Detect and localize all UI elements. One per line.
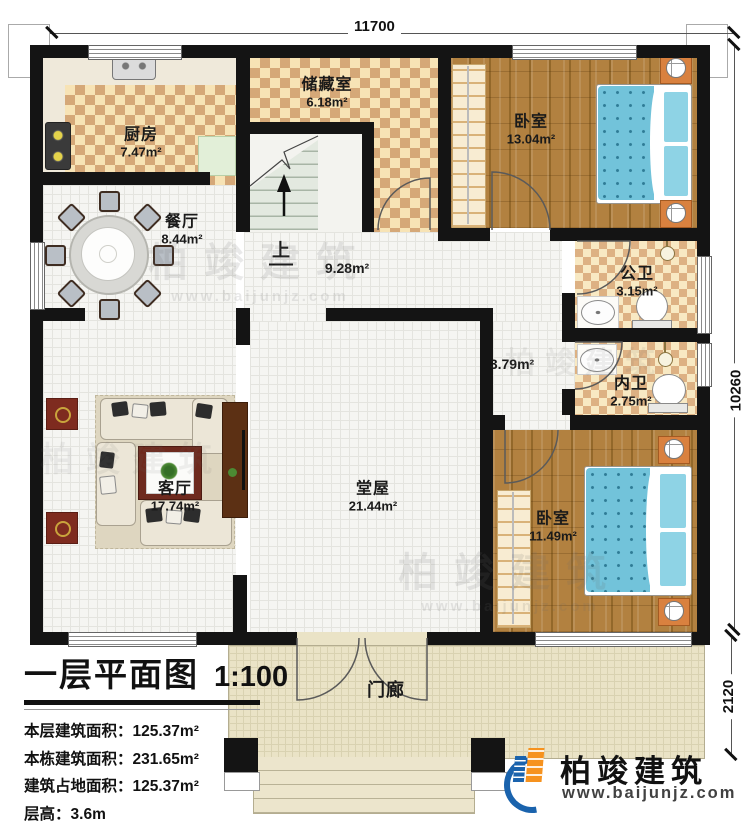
kitchen-stove <box>45 122 71 170</box>
wardrobe-top <box>452 64 486 228</box>
window-bedroom-top <box>512 45 637 60</box>
dining-chair <box>45 245 66 266</box>
title-underline-thin <box>24 709 260 710</box>
bed-bottom-pillow <box>658 530 688 588</box>
inner-bath-label: 内卫2.75m² <box>610 370 651 409</box>
floor-plan-sheet: 厨房7.47m² 储藏室6.18m² 卧室13.04m² 餐厅8.44m² 上 … <box>0 0 750 836</box>
window-inner-bath <box>697 343 712 387</box>
dining-chair <box>99 191 120 212</box>
wall-bath-bottom-a <box>493 415 505 430</box>
nightstand-lamp <box>664 439 684 459</box>
sofa-cushion <box>111 401 129 417</box>
wall-bath-mid <box>562 328 710 342</box>
title-underline <box>24 700 260 705</box>
living-label: 客厅17.74m² <box>151 475 199 514</box>
dim-porch-label: 2120 <box>720 674 737 719</box>
public-bath-label: 公卫3.15m² <box>616 260 657 299</box>
inner-bath-shower-head <box>658 352 673 367</box>
logo-website: www.baijunjz.com <box>562 784 736 803</box>
porch-column-right <box>471 738 505 772</box>
wall-left <box>30 45 43 645</box>
bath-lobby-area-label: 3.79m² <box>490 356 534 372</box>
inner-bath-sink <box>580 348 614 372</box>
porch-column-base-right <box>471 772 507 791</box>
wall-bath-left-lower <box>562 389 575 415</box>
bed-top-sheet <box>650 86 662 200</box>
bed-top-pillow <box>662 144 690 198</box>
logo-mark-building-blue <box>513 756 526 782</box>
porch-label: 门廊 <box>367 676 405 702</box>
nightstand-lamp <box>666 58 686 78</box>
tv-plant <box>228 468 237 477</box>
hallway-area-label: 9.28m² <box>325 260 369 276</box>
window-bedroom-bottom <box>535 632 692 647</box>
bed-top-pillow <box>662 90 690 144</box>
side-table-lamp <box>55 407 71 423</box>
wardrobe-bottom <box>497 490 531 628</box>
wall-bath-bottom-b <box>570 415 710 430</box>
inner-bath-toilet-tank <box>648 403 688 413</box>
page-title: 一层平面图 <box>24 648 199 696</box>
dining-table-center <box>99 245 117 263</box>
wardrobe-rail <box>467 66 469 224</box>
sofa-cushion <box>99 451 115 469</box>
wall-hall-top <box>326 308 493 321</box>
nightstand-lamp <box>664 601 684 621</box>
window-kitchen <box>88 45 182 60</box>
title-block: 一层平面图 1:100 本层建筑面积：125.37m² 本栋建筑面积：231.6… <box>24 648 288 829</box>
side-table-lamp <box>55 521 71 537</box>
wall-bedroom-top-left <box>438 58 451 232</box>
kitchen-label: 厨房7.47m² <box>120 121 161 160</box>
wall-bath-left-upper <box>562 293 575 328</box>
stairs-up-label: 上 <box>269 237 293 266</box>
bed-bottom-pillow <box>658 472 688 530</box>
sofa-cushion <box>131 403 148 419</box>
logo-mark-building-orange <box>526 748 545 782</box>
wall-bedroom-bottom-left <box>480 430 493 632</box>
wall-tv-upper <box>236 308 250 345</box>
dim-top-label: 11700 <box>348 18 401 35</box>
stat-footprint-area: 建筑占地面积：125.37m² <box>24 774 288 796</box>
sofa-cushion <box>195 403 213 419</box>
wall-bedroom-top-bottom-a <box>438 228 490 241</box>
bed-bottom-mattress <box>586 468 650 592</box>
stat-building-area: 本栋建筑面积：231.65m² <box>24 747 288 769</box>
tv-screen <box>242 430 245 490</box>
public-bath-sink <box>581 300 615 325</box>
wall-storage-bottom <box>244 122 374 134</box>
wall-hall-right <box>480 321 493 430</box>
stat-floor-height: 层高：3.6m <box>24 802 288 824</box>
kitchen-cutting-board <box>198 136 236 176</box>
wardrobe-rail <box>512 492 514 624</box>
dining-chair <box>99 299 120 320</box>
bed-bottom-sheet <box>646 468 658 592</box>
public-bath-shower-head <box>660 246 675 261</box>
hall-label: 堂屋21.44m² <box>349 475 397 514</box>
storage-label: 储藏室6.18m² <box>301 71 352 110</box>
dining-chair <box>153 245 174 266</box>
inner-bath-toilet <box>652 374 686 406</box>
wall-stair-right <box>362 134 374 232</box>
bedroom-bottom-label: 卧室11.49m² <box>529 505 577 544</box>
bedroom-top-label: 卧室13.04m² <box>507 108 555 147</box>
scale-label: 1:100 <box>214 661 288 694</box>
wall-kitchen-dining <box>30 172 210 185</box>
dining-label: 餐厅8.44m² <box>161 208 202 247</box>
nightstand-lamp <box>666 203 686 223</box>
stat-floor-area: 本层建筑面积：125.37m² <box>24 719 288 741</box>
bed-top-mattress <box>598 86 654 200</box>
dim-right-label: 10260 <box>727 364 744 418</box>
sofa-cushion <box>99 475 117 495</box>
sofa-cushion <box>149 401 166 416</box>
porch-door-threshold <box>297 632 427 645</box>
wall-kitchen-right <box>236 45 250 232</box>
porch-slab <box>228 645 705 759</box>
dim-line-right <box>734 45 735 632</box>
window-dining <box>30 242 45 310</box>
inner-bath-shower-line <box>664 342 666 352</box>
wall-tv-lower <box>233 575 247 632</box>
window-public-bath <box>697 256 712 334</box>
window-living <box>68 632 197 647</box>
wall-bedroom-top-bottom-b <box>550 228 710 241</box>
